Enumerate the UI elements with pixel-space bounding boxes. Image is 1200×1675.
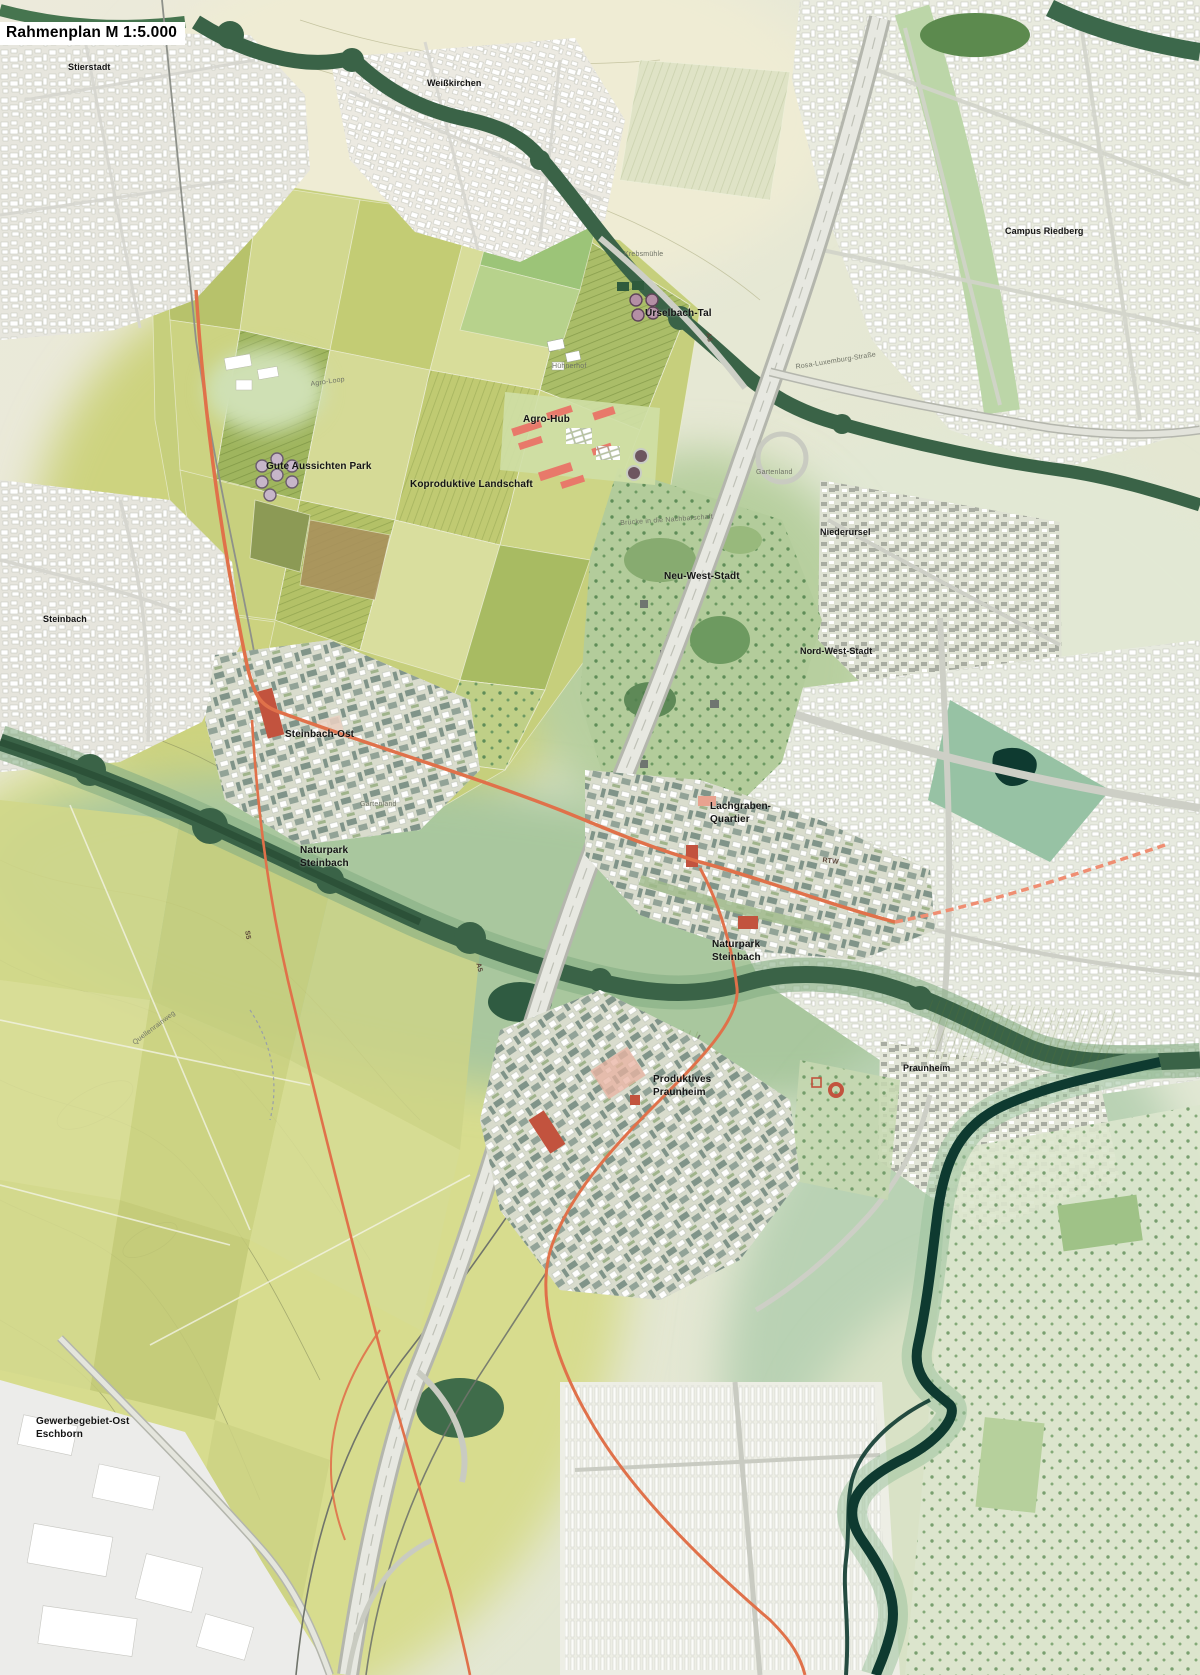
biogas-tank [634,449,648,463]
masterplan-map: Rahmenplan M 1:5.000 Stierstadt Weißkirc… [0,0,1200,1675]
accent-building-red [686,845,698,867]
biogas-tank [627,466,641,480]
map-canvas [0,0,1200,1675]
